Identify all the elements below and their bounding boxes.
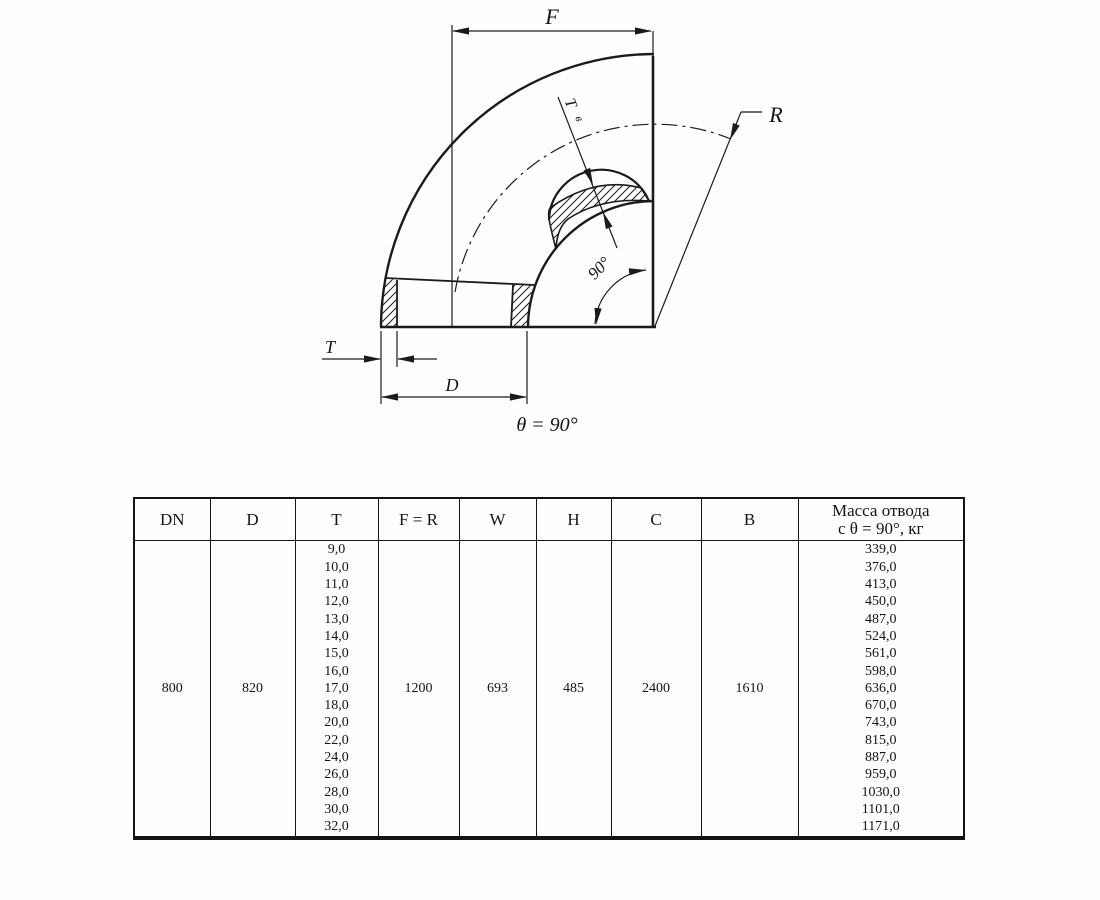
dimensions-table: DN D T F = R W H C B Масса отвода с θ = … — [133, 497, 965, 840]
mass-header-line2: с θ = 90°, кг — [799, 520, 964, 538]
elbow-technical-drawing: F R T D T в 90° θ = 90° — [0, 0, 1100, 470]
r-leader — [655, 112, 762, 326]
cell-h: 485 — [536, 541, 611, 839]
extension-lines — [381, 25, 653, 404]
elbow-drawing-area: F R T D T в 90° θ = 90° — [0, 0, 1100, 470]
wall-section-right — [511, 285, 535, 327]
col-header-b: B — [701, 498, 798, 541]
table-header-row: DN D T F = R W H C B Масса отвода с θ = … — [134, 498, 964, 541]
col-header-h: H — [536, 498, 611, 541]
col-header-w: W — [459, 498, 536, 541]
angle-dimension-arc — [595, 270, 646, 324]
page: F R T D T в 90° θ = 90° DN D T F = R W H… — [0, 0, 1100, 900]
cell-b: 1610 — [701, 541, 798, 839]
theta-caption: θ = 90° — [516, 414, 577, 436]
t-dimension-label: T — [325, 337, 337, 357]
cell-dn: 800 — [134, 541, 210, 839]
cell-mass-values: 339,0 376,0 413,0 450,0 487,0 524,0 561,… — [798, 541, 964, 839]
col-header-dn: DN — [134, 498, 210, 541]
col-header-d: D — [210, 498, 295, 541]
angle-label: 90° — [584, 253, 614, 283]
arrowhead — [635, 27, 652, 34]
tv-dimension-label: T — [561, 96, 581, 112]
cell-w: 693 — [459, 541, 536, 839]
section-cut-line — [385, 278, 535, 285]
tv-dimension-subscript: в — [572, 114, 585, 123]
cell-fr: 1200 — [378, 541, 459, 839]
arrowhead — [510, 393, 527, 400]
arrowhead — [364, 355, 381, 362]
col-header-c: C — [611, 498, 701, 541]
cell-t-values: 9,0 10,0 11,0 12,0 13,0 14,0 15,0 16,0 1… — [295, 541, 378, 839]
arrowhead — [592, 308, 601, 326]
f-dimension-label: F — [544, 4, 559, 29]
arrowhead — [397, 355, 414, 362]
cell-c: 2400 — [611, 541, 701, 839]
d-dimension-label: D — [445, 375, 459, 395]
cell-d: 820 — [210, 541, 295, 839]
mass-header-line1: Масса отвода — [799, 502, 964, 520]
col-header-fr: F = R — [378, 498, 459, 541]
col-header-t: T — [295, 498, 378, 541]
col-header-mass: Масса отвода с θ = 90°, кг — [798, 498, 964, 541]
arrowhead — [381, 393, 398, 400]
r-dimension-label: R — [768, 102, 783, 127]
arrowhead — [452, 27, 469, 34]
table-data-row: 800 820 9,0 10,0 11,0 12,0 13,0 14,0 15,… — [134, 541, 964, 839]
